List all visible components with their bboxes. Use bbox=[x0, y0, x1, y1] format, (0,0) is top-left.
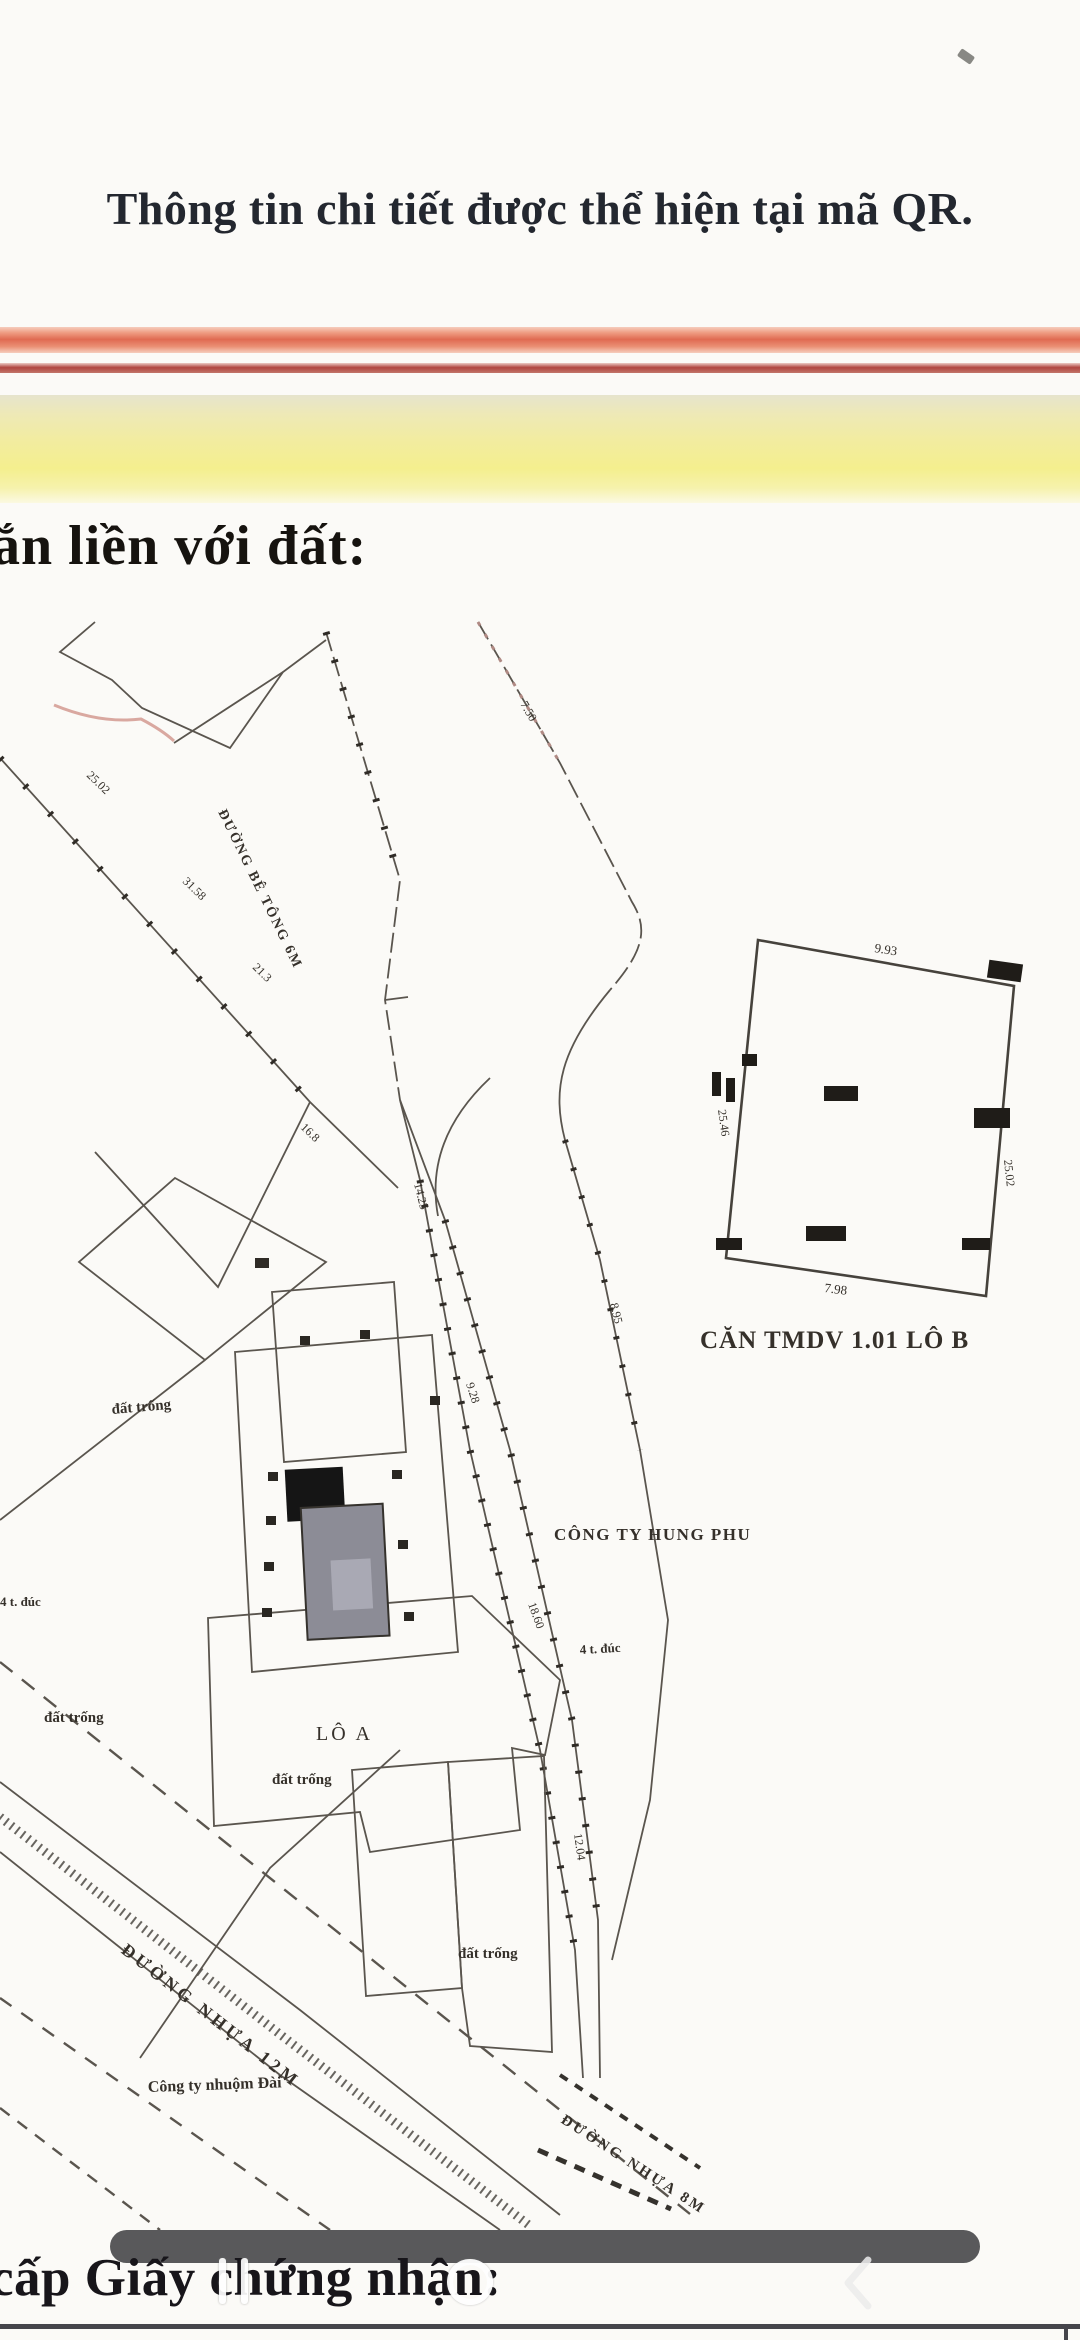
label-vacant-3: đất trống bbox=[272, 1772, 332, 1788]
red-band bbox=[0, 327, 1080, 353]
label-vacant-1: đất trống bbox=[111, 1397, 172, 1418]
label-vacant-4: đất trống bbox=[458, 1946, 518, 1962]
dim-5: 12.04 bbox=[571, 1832, 589, 1861]
road-north-east-edge bbox=[478, 622, 641, 990]
dim-6: 8.95 bbox=[607, 1301, 626, 1325]
qr-note-text: Thông tin chi tiết được thể hiện tại mã … bbox=[0, 182, 1080, 235]
road-name-sw: ĐƯỜNG NHỰA 12M bbox=[118, 1939, 306, 2092]
dim-3: 9.28 bbox=[463, 1381, 483, 1405]
label-vacant-2: đất trống bbox=[44, 1710, 104, 1726]
thin-red-line bbox=[0, 363, 1080, 373]
dim-0: 25.02 bbox=[84, 768, 113, 797]
road-name-mouth: ĐƯỜNG BÊ TÔNG 6M bbox=[214, 806, 306, 971]
label-floors-2: 4 t. đúc bbox=[579, 1640, 621, 1657]
recents-icon[interactable] bbox=[219, 2258, 226, 2304]
parcel-upper bbox=[272, 1282, 406, 1462]
road-north-west-edge bbox=[326, 632, 400, 1100]
boundary-zigzag bbox=[60, 622, 326, 748]
inset-dim-right: 25.02 bbox=[1001, 1159, 1018, 1187]
section-heading: ắn liền với đất: bbox=[0, 514, 367, 578]
inset-caption: CĂN TMDV 1.01 LÔ B bbox=[700, 1325, 969, 1354]
dim-4: 18.60 bbox=[525, 1600, 547, 1630]
scan-speck bbox=[957, 48, 975, 65]
recents-icon-bar2[interactable] bbox=[241, 2258, 248, 2304]
dashed-line-3 bbox=[0, 2108, 160, 2230]
label-company-bottom: Công ty nhuộm Đài bbox=[148, 2074, 283, 2096]
table-rule-tick bbox=[1064, 2324, 1068, 2340]
yellow-band bbox=[0, 395, 1080, 503]
pink-scan-line bbox=[54, 705, 174, 741]
road-right-curve bbox=[559, 990, 668, 1960]
cadastral-map: LÔ A CÔNG TY HUNG PHU Công ty nhuộm Đài … bbox=[0, 612, 1080, 2232]
bottom-caption: cấp Giấy chứng nhận: bbox=[0, 2248, 502, 2308]
parcel-s2 bbox=[448, 1756, 552, 2052]
dim-8: 21.3 bbox=[250, 960, 275, 985]
dim-1: 31.58 bbox=[180, 874, 209, 903]
label-floors-1: 4 t. đúc bbox=[0, 1594, 41, 1609]
parcel-s1 bbox=[352, 1762, 462, 1996]
document-scan-screen: Thông tin chi tiết được thể hiện tại mã … bbox=[0, 0, 1080, 2340]
left-boundary bbox=[0, 758, 398, 1188]
road-name-sw2: ĐƯỜNG NHỰA 8M bbox=[558, 2111, 709, 2218]
junction-inner-curve bbox=[436, 1078, 490, 1216]
inset-dim-bottom: 7.98 bbox=[824, 1280, 848, 1298]
road-central-west bbox=[400, 1100, 600, 2078]
inset-dim-left: 25.46 bbox=[715, 1108, 733, 1137]
inset-dim-top: 9.93 bbox=[874, 940, 899, 958]
home-icon[interactable] bbox=[447, 2259, 493, 2305]
dim-2: 14.25 bbox=[411, 1181, 431, 1211]
label-company-right: CÔNG TY HUNG PHU bbox=[554, 1525, 751, 1544]
dim-9: 16.8 bbox=[298, 1120, 323, 1145]
dashed-line-2 bbox=[0, 1998, 330, 2230]
back-icon[interactable] bbox=[840, 2256, 874, 2310]
label-lot-a: LÔ A bbox=[316, 1721, 373, 1745]
table-top-rule bbox=[0, 2324, 1080, 2329]
road-sw-edge1 bbox=[0, 1782, 560, 2215]
